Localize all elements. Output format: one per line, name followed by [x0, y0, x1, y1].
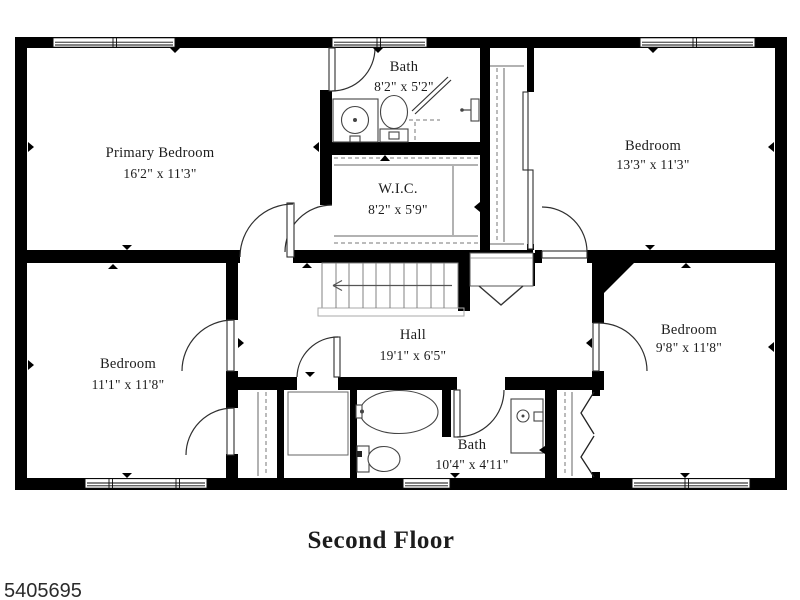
closet-lower-left-bedroom: [258, 392, 266, 476]
room-name: W.I.C.: [378, 181, 418, 197]
floor-plan-drawing: Primary Bedroom 16'2" x 11'3" Bath 8'2" …: [0, 0, 800, 600]
room-name: Bath: [458, 437, 487, 453]
room-dims: 8'2" x 5'9": [368, 202, 428, 217]
hall-alcove: [470, 253, 533, 305]
room-dims: 8'2" x 5'2": [374, 79, 434, 94]
bath-lower-door: [454, 390, 504, 437]
primary-bedroom-entry-door: [240, 203, 294, 257]
bifold-door-lower-panel: [581, 436, 594, 477]
bathtub-icon: [356, 391, 438, 434]
room-label-bedroom-upper-right: Bedroom 13'3" x 11'3": [616, 138, 689, 172]
room-label-bath-upper: Bath 8'2" x 5'2": [374, 59, 434, 94]
room-dims: 19'1" x 6'5": [380, 348, 447, 363]
room-name: Bedroom: [661, 322, 717, 338]
room-name: Bedroom: [100, 356, 156, 372]
room-dims: 10'4" x 4'11": [435, 457, 508, 472]
floor-plan-page: Primary Bedroom 16'2" x 11'3" Bath 8'2" …: [0, 0, 800, 600]
room-dims: 13'3" x 11'3": [616, 157, 689, 172]
room-label-wic: W.I.C. 8'2" x 5'9": [368, 181, 428, 217]
linen-closet-door: [297, 337, 340, 377]
closet-upper-right-bedroom: [490, 66, 533, 249]
ensuite-bath-door: [329, 48, 375, 91]
room-name: Hall: [400, 327, 426, 343]
window-bath-lower: [403, 479, 450, 489]
room-label-primary-bedroom: Primary Bedroom 16'2" x 11'3": [106, 145, 215, 181]
window-bedroom-upper-right: [640, 38, 755, 47]
toilet-icon: [357, 446, 400, 472]
stair-direction-arrow: [333, 281, 452, 291]
staircase: [318, 263, 464, 316]
window-bedroom-lower-left: [85, 479, 207, 489]
bedroom-upper-right-door: [542, 207, 587, 258]
room-dims: 9'8" x 11'8": [656, 340, 722, 355]
toilet-icon: [380, 96, 408, 143]
wic-shelf-lines: [334, 158, 478, 243]
room-name: Primary Bedroom: [106, 145, 215, 161]
room-name: Bedroom: [625, 138, 681, 154]
bifold-door-upper-panel: [581, 392, 594, 434]
sink-vanity-icon: [511, 399, 543, 453]
window-bath-upper: [332, 38, 427, 47]
room-name: Bath: [390, 59, 419, 75]
linen-closet: [288, 392, 348, 455]
bedroom-lower-left-closet-door: [186, 408, 234, 455]
closet-lower-right-bedroom: [565, 392, 594, 477]
bedroom-lower-left-entry-door: [182, 320, 234, 371]
room-label-bath-lower: Bath 10'4" x 4'11": [435, 437, 508, 472]
window-primary-bedroom: [53, 38, 175, 47]
room-label-bedroom-lower-left: Bedroom 11'1" x 11'8": [92, 356, 165, 392]
room-dims: 16'2" x 11'3": [123, 166, 196, 181]
page-title: Second Floor: [308, 527, 455, 554]
room-label-bedroom-lower-right: Bedroom 9'8" x 11'8": [656, 322, 722, 355]
window-bedroom-lower-right: [632, 479, 750, 489]
bedroom-lower-right-door: [593, 323, 647, 371]
sink-vanity-icon: [333, 99, 378, 142]
room-dims: 11'1" x 11'8": [92, 377, 165, 392]
room-label-hall: Hall 19'1" x 6'5": [380, 327, 447, 363]
listing-id: 5405695: [4, 580, 82, 600]
